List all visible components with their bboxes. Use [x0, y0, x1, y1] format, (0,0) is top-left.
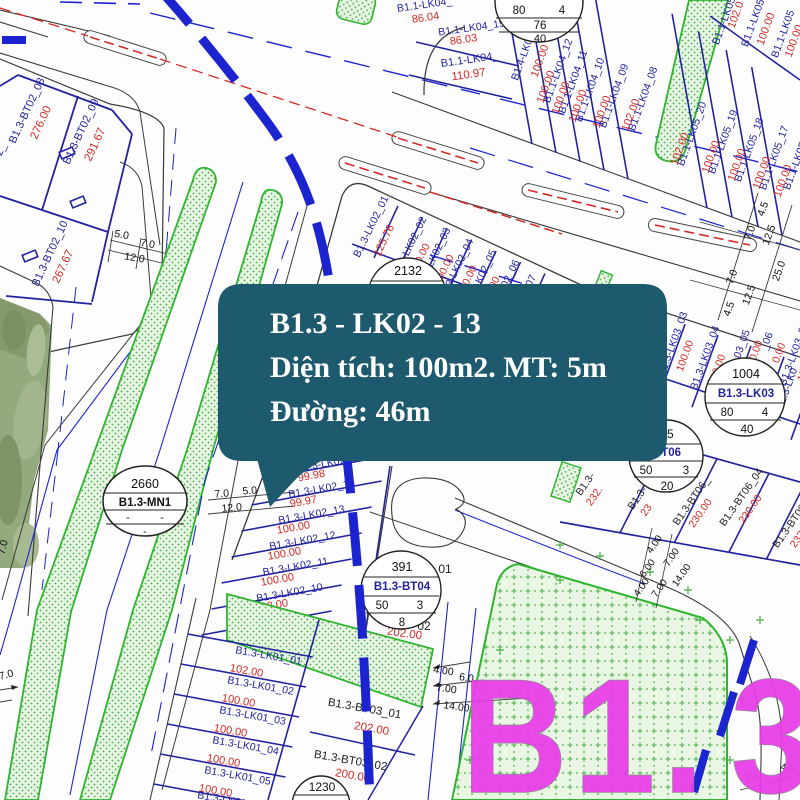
svg-text:3: 3 — [417, 600, 423, 612]
svg-text:5.0: 5.0 — [113, 228, 130, 242]
svg-text:B1.3 - LK02 - 13: B1.3 - LK02 - 13 — [270, 307, 481, 340]
svg-text:3: 3 — [683, 465, 689, 477]
svg-text:40: 40 — [534, 33, 546, 45]
svg-text:1: 1 — [574, 645, 655, 800]
svg-text:1004: 1004 — [732, 367, 760, 381]
svg-text:2660: 2660 — [131, 477, 159, 491]
svg-text:01: 01 — [438, 562, 452, 576]
svg-text:B1.3-BT04: B1.3-BT04 — [374, 581, 431, 593]
svg-text:50: 50 — [376, 600, 389, 612]
svg-text:391: 391 — [392, 560, 413, 574]
svg-text:4: 4 — [559, 5, 566, 17]
svg-text:B1.3-MN1: B1.3-MN1 — [119, 497, 172, 509]
svg-text:80: 80 — [513, 5, 526, 17]
svg-text:3: 3 — [731, 645, 800, 800]
svg-text:20: 20 — [661, 481, 674, 493]
svg-text:50: 50 — [640, 465, 653, 477]
svg-text:Đường: 46m: Đường: 46m — [270, 395, 430, 428]
svg-text:80: 80 — [721, 407, 734, 419]
svg-text:2132: 2132 — [394, 264, 422, 278]
svg-text:12.0: 12.0 — [221, 501, 243, 515]
svg-text:1230: 1230 — [309, 780, 336, 794]
svg-text:-: - — [143, 526, 147, 538]
svg-text:7.0: 7.0 — [214, 487, 230, 500]
svg-text:8: 8 — [399, 617, 405, 629]
svg-text:76: 76 — [534, 20, 547, 32]
svg-text:B: B — [462, 645, 567, 800]
svg-text:40: 40 — [741, 424, 754, 436]
svg-text:B1.3-LK03: B1.3-LK03 — [718, 388, 774, 400]
svg-text:Diện tích: 100m2. MT: 5m: Diện tích: 100m2. MT: 5m — [270, 351, 607, 384]
svg-text:-: - — [126, 512, 130, 524]
svg-text:4: 4 — [762, 407, 769, 419]
svg-text:7.0: 7.0 — [139, 237, 156, 251]
svg-text:.: . — [663, 645, 704, 800]
svg-text:-: - — [160, 512, 164, 524]
